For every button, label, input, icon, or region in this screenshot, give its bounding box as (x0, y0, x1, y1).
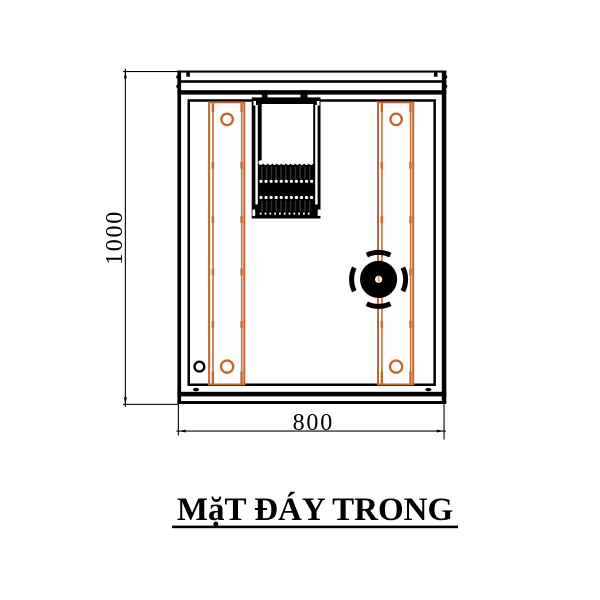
svg-text:800: 800 (293, 410, 334, 436)
svg-text:1000: 1000 (102, 210, 128, 265)
svg-text:MặT ĐÁY TRONG: MặT ĐÁY TRONG (177, 491, 453, 528)
